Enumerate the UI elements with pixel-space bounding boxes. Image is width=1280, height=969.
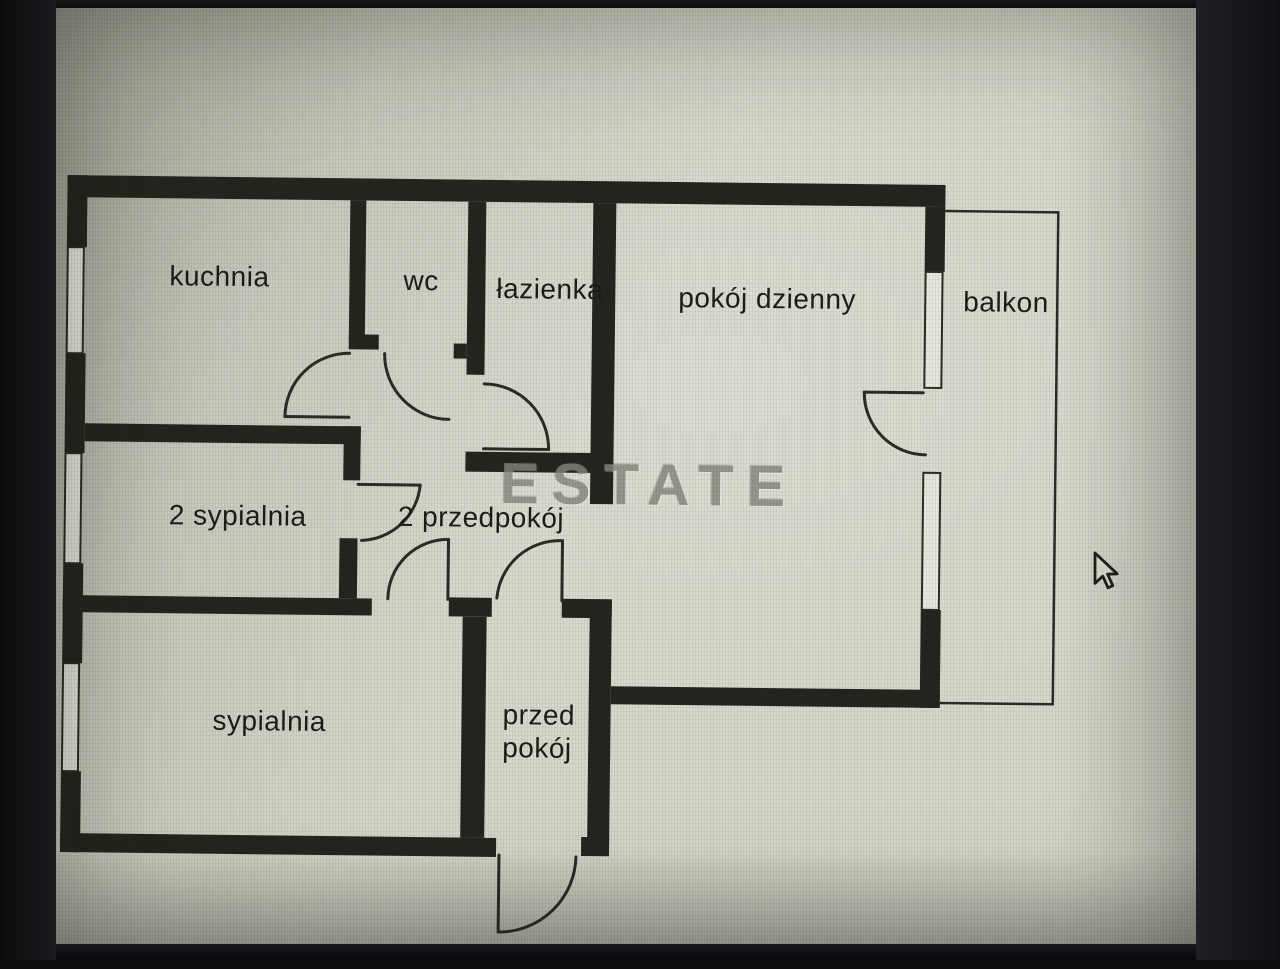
photo-frame-bottom (0, 944, 1280, 960)
door-arc (388, 539, 449, 600)
wall-segment (60, 833, 496, 857)
wall-segment (62, 563, 83, 663)
wall-segment (460, 617, 487, 838)
window (924, 272, 942, 388)
window (62, 663, 79, 771)
wall-segment (587, 601, 612, 854)
window (64, 453, 81, 563)
door-arc (285, 353, 350, 418)
wall-segment (449, 597, 492, 616)
room-label-przedpokoj-line2: pokój (502, 731, 575, 765)
watermark: ESTATE (500, 450, 799, 520)
wall-segment (65, 353, 86, 453)
wall-segment (920, 610, 941, 708)
balcony-outline (940, 211, 1059, 704)
arrow-cursor-icon (1092, 551, 1126, 591)
floor-plan: kuchnia wc łazienka pokój dzienny balkon… (0, 0, 1280, 969)
wall-segment (343, 426, 361, 480)
wall-segment (466, 202, 486, 375)
room-label-lazienka: łazienka (496, 273, 603, 306)
wall-segment (67, 175, 945, 207)
window (67, 247, 84, 353)
wall-segment (85, 423, 361, 444)
room-label-2-sypialnia: 2 sypialnia (169, 499, 307, 533)
room-label-kuchnia: kuchnia (169, 260, 269, 293)
door-arc (864, 392, 927, 455)
door-leaf (358, 484, 420, 485)
wall-segment (63, 595, 372, 616)
room-label-wc: wc (403, 265, 439, 297)
door-arc (498, 856, 576, 933)
room-label-przedpokoj-line1: przed (502, 698, 575, 732)
door-leaf (562, 541, 563, 601)
room-label-pokoj-dzienny: pokój dzienny (678, 282, 856, 316)
wall-segment (925, 207, 946, 272)
door-leaf (448, 539, 449, 599)
wall-segment (339, 538, 358, 598)
door-leaf (864, 392, 923, 393)
window (922, 473, 941, 610)
wall-segment (611, 686, 940, 708)
room-label-balkon: balkon (963, 286, 1049, 319)
wall-segment (349, 200, 367, 338)
photo-frame-right (1196, 0, 1280, 960)
room-label-przedpokoj: przed pokój (502, 698, 575, 765)
photo-frame-top (0, 0, 1280, 8)
wall-segment (67, 175, 88, 247)
wall-segment (454, 343, 467, 358)
door-arc (484, 384, 550, 450)
room-label-sypialnia: sypialnia (212, 705, 326, 738)
wall-segment (349, 334, 379, 349)
door-arc (497, 540, 563, 599)
door-leaf (285, 417, 349, 418)
photo-frame-left (0, 0, 56, 960)
door-arc (384, 354, 450, 420)
door-leaf (498, 855, 499, 930)
